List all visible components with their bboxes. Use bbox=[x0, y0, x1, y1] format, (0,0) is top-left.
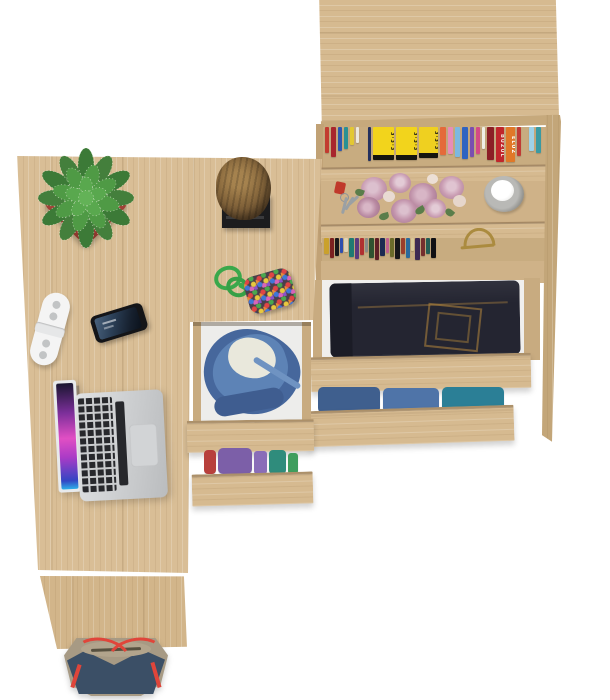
book-spine bbox=[344, 127, 348, 149]
jeans-stack bbox=[329, 280, 520, 357]
book-spine bbox=[487, 127, 494, 160]
book-spine bbox=[421, 238, 425, 256]
book-spine bbox=[368, 127, 371, 161]
rose-flower bbox=[389, 173, 411, 193]
book-spine bbox=[448, 127, 453, 154]
book-spine: 3·3·3 bbox=[396, 127, 417, 160]
book-spine: 3·3·3 bbox=[373, 127, 394, 160]
book-spine bbox=[349, 238, 354, 257]
book-spine bbox=[529, 127, 534, 151]
rose-bud bbox=[383, 191, 395, 202]
book-spine bbox=[361, 127, 366, 135]
bookcase-shelf-flowers bbox=[321, 181, 554, 225]
keychain bbox=[212, 260, 296, 318]
furniture-product-photo: 3·3·33·3·33·3·3BUZULELUZ bbox=[0, 0, 610, 700]
denim-jacket bbox=[200, 325, 304, 421]
folded-clothes bbox=[218, 448, 252, 474]
folded-clothes bbox=[204, 450, 216, 474]
gold-souvenir bbox=[459, 227, 495, 254]
candle-holder bbox=[484, 176, 524, 212]
rose-flower bbox=[357, 197, 380, 218]
book-spine bbox=[426, 238, 430, 254]
drawer-rail bbox=[524, 278, 540, 360]
remote-button bbox=[48, 312, 58, 322]
book-spine bbox=[517, 127, 521, 156]
book-spine bbox=[330, 238, 334, 258]
rose-flower bbox=[425, 199, 446, 218]
book-spine bbox=[350, 127, 354, 145]
book-spine bbox=[523, 127, 527, 135]
book-spine bbox=[476, 127, 480, 154]
candle bbox=[491, 180, 514, 201]
book-spine bbox=[335, 238, 339, 256]
bookcase-shelf-small-books bbox=[322, 238, 554, 263]
rose-flower bbox=[391, 199, 417, 223]
remote-button bbox=[38, 350, 48, 360]
book-spine bbox=[431, 238, 436, 258]
pedestal-drawer-front bbox=[192, 471, 314, 506]
book-spine bbox=[401, 238, 405, 254]
remote-button bbox=[41, 339, 51, 349]
rose-bud bbox=[427, 174, 438, 184]
book-spine bbox=[462, 127, 468, 159]
book-spine bbox=[375, 238, 379, 260]
book-spine bbox=[455, 127, 460, 157]
book-spine bbox=[338, 127, 342, 151]
book-spine bbox=[411, 238, 414, 251]
handbag bbox=[64, 638, 168, 696]
bookcase-shelf-books: 3·3·33·3·33·3·3BUZULELUZ bbox=[323, 127, 555, 168]
pedestal-lower-drawer-contents bbox=[204, 447, 301, 474]
succulent-plant bbox=[33, 144, 139, 256]
jeans-pocket-inner bbox=[435, 312, 472, 343]
jeans-waistband bbox=[329, 283, 352, 357]
book-spine bbox=[395, 238, 400, 259]
folded-clothes bbox=[269, 450, 286, 474]
wood-log bbox=[216, 157, 271, 220]
book-spine bbox=[356, 127, 359, 143]
book-spine: ELUZ bbox=[506, 127, 515, 162]
bookcase-top-panel bbox=[318, 0, 559, 127]
laptop-trackpad bbox=[129, 424, 158, 467]
laptop-spacebar bbox=[115, 401, 128, 485]
rose-leaf bbox=[378, 212, 389, 221]
bead-pouch bbox=[242, 266, 299, 316]
book-spine bbox=[390, 238, 394, 257]
book-spine bbox=[406, 238, 410, 258]
book-spine bbox=[324, 238, 329, 254]
laptop-keyboard bbox=[78, 397, 117, 493]
book-spine bbox=[470, 127, 474, 157]
book-spine bbox=[325, 127, 329, 153]
folded-clothes bbox=[254, 451, 267, 474]
cabinet-drawer-front bbox=[307, 405, 514, 447]
lockscreen-text-line bbox=[104, 325, 114, 330]
book-spine bbox=[365, 238, 368, 252]
book-spine bbox=[386, 238, 389, 253]
lockscreen-text-line bbox=[102, 319, 116, 325]
book-spine bbox=[380, 238, 385, 256]
book-spine bbox=[482, 127, 485, 149]
laptop-base bbox=[75, 389, 169, 501]
book-spine bbox=[344, 238, 348, 252]
book-spine bbox=[340, 238, 343, 253]
book-spine bbox=[355, 238, 359, 259]
remote-band bbox=[34, 321, 66, 338]
book-spine bbox=[440, 127, 446, 155]
book-spine bbox=[331, 127, 336, 157]
book-spine bbox=[415, 238, 420, 260]
book-spine bbox=[360, 238, 364, 255]
book-spine bbox=[536, 127, 541, 153]
book-spine: BUZUL bbox=[496, 127, 504, 162]
laptop bbox=[47, 371, 174, 507]
remote-button bbox=[52, 300, 62, 310]
rose-bud bbox=[453, 195, 466, 207]
book-spine bbox=[369, 238, 374, 258]
rose-leaf bbox=[444, 207, 455, 218]
book-spine: 3·3·3 bbox=[419, 127, 438, 158]
